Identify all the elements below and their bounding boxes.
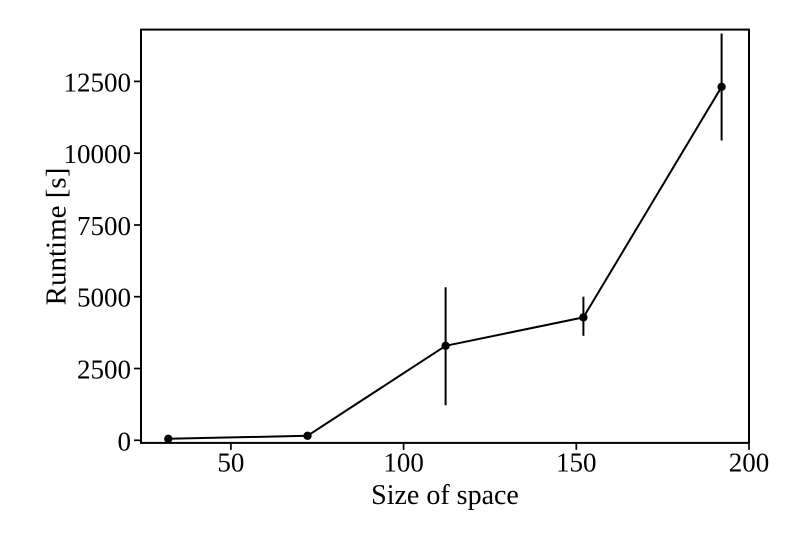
svg-text:10000: 10000 [64, 139, 132, 169]
svg-text:50: 50 [217, 448, 244, 478]
svg-text:12500: 12500 [64, 67, 132, 97]
svg-text:150: 150 [556, 448, 597, 478]
svg-text:2500: 2500 [77, 355, 131, 385]
svg-text:200: 200 [729, 448, 770, 478]
svg-text:0: 0 [118, 426, 132, 456]
svg-text:Runtime [s]: Runtime [s] [41, 168, 73, 306]
svg-text:Size of space: Size of space [371, 480, 519, 511]
svg-text:100: 100 [383, 448, 424, 478]
svg-text:7500: 7500 [77, 211, 131, 241]
svg-text:5000: 5000 [77, 283, 131, 313]
